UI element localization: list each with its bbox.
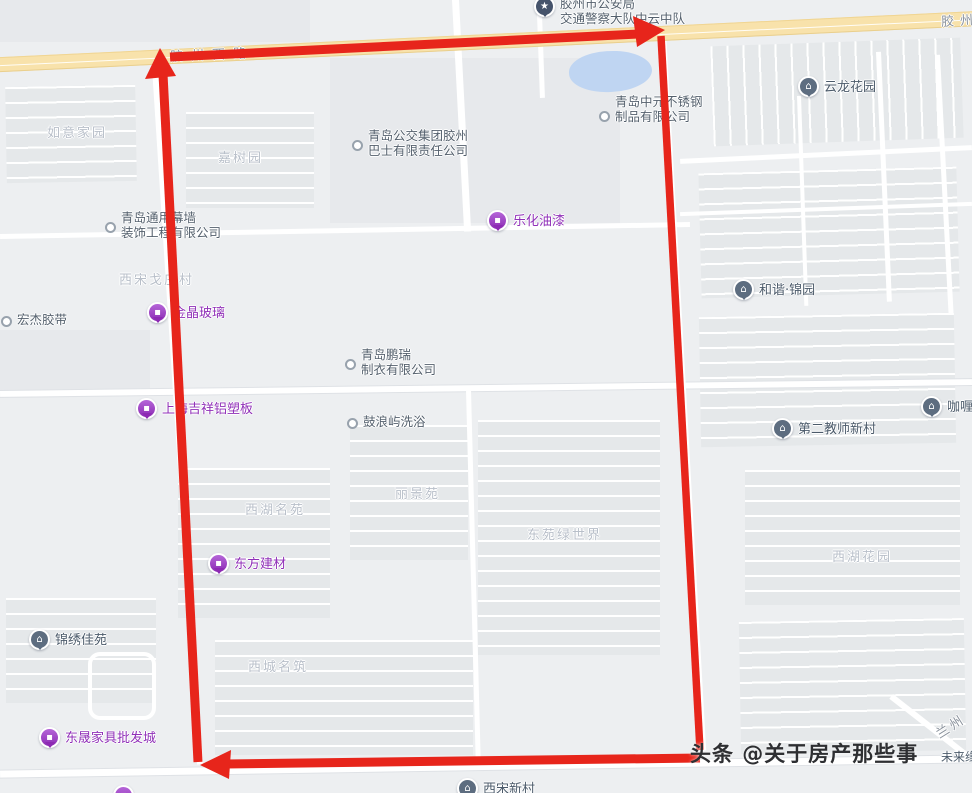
dot-poi-icon bbox=[347, 418, 358, 429]
poi-dierjiaoshixincun[interactable]: ⌂ 第二教师新村 bbox=[772, 418, 876, 439]
house-pin-icon: ⌂ bbox=[798, 76, 819, 97]
poi-label: 巴士有限责任公司 bbox=[368, 143, 468, 158]
poi-gulangyu-bath[interactable]: 鼓浪屿洗浴 bbox=[347, 414, 426, 429]
road-loop bbox=[88, 652, 156, 720]
poi-label: 交通警察大队中云中队 bbox=[560, 11, 685, 26]
map-block bbox=[739, 618, 966, 754]
store-pin-icon: ▪ bbox=[147, 302, 168, 323]
area-label-xichengmingzhu: 西城名筑 bbox=[248, 656, 308, 675]
pond bbox=[568, 49, 653, 94]
road-label-jiaozhou-west: 胶州西路 bbox=[170, 42, 255, 65]
poi-dongshengjiaju[interactable]: ▪ 东晟家具批发城 bbox=[39, 727, 156, 748]
poi-hongjie-tape[interactable]: 宏杰胶带 bbox=[1, 312, 67, 327]
map-block bbox=[0, 0, 310, 42]
road-label-jiaozhou: 胶州 bbox=[941, 9, 972, 30]
poi-label: 乐化油漆 bbox=[513, 210, 565, 229]
poi-label: 上海吉祥铝塑板 bbox=[162, 398, 253, 417]
poi-label: 东方建材 bbox=[234, 553, 286, 572]
poi-label-weilaiyuan: 未来缘 bbox=[941, 748, 972, 765]
poi-label: 宏杰胶带 bbox=[17, 312, 67, 327]
dot-poi-icon bbox=[352, 140, 363, 151]
poi-label: 锦绣佳苑 bbox=[55, 629, 107, 648]
poi-yunlonghuayuan[interactable]: ⌂ 云龙花园 bbox=[798, 76, 876, 97]
store-pin-icon: ▪ bbox=[136, 398, 157, 419]
police-pin-icon: ★ bbox=[534, 0, 555, 17]
dot-poi-icon bbox=[105, 222, 116, 233]
dot-poi-icon bbox=[1, 316, 12, 327]
store-pin-icon: ▪ bbox=[208, 553, 229, 574]
area-label-jiashuyuan: 嘉树园 bbox=[218, 147, 263, 166]
poi-label: 金晶玻璃 bbox=[173, 302, 225, 321]
road bbox=[680, 145, 972, 164]
poi-pin-cutoff[interactable]: ▪ bbox=[113, 785, 134, 793]
poi-label: 制品有限公司 bbox=[615, 109, 703, 124]
poi-label: 青岛鹏瑞 bbox=[361, 347, 436, 362]
poi-lehuayouqi[interactable]: ▪ 乐化油漆 bbox=[487, 210, 565, 231]
poi-label: 第二教师新村 bbox=[798, 418, 876, 437]
poi-label: 和谐·锦园 bbox=[759, 279, 815, 298]
poi-hexiejinyuan[interactable]: ⌂ 和谐·锦园 bbox=[733, 279, 815, 300]
poi-label: 胶州市公安局 bbox=[560, 0, 685, 11]
house-pin-icon: ⌂ bbox=[772, 418, 793, 439]
poi-dongfangjiancai[interactable]: ▪ 东方建材 bbox=[208, 553, 286, 574]
poi-label: 东晟家具批发城 bbox=[65, 727, 156, 746]
map-block bbox=[178, 468, 330, 618]
map-block bbox=[0, 330, 150, 390]
area-label-xisonggezhuangcun: 西宋戈庄村 bbox=[119, 269, 194, 288]
poi-label: 装饰工程有限公司 bbox=[121, 225, 221, 240]
poi-label: 青岛通用幕墙 bbox=[121, 210, 221, 225]
poi-label: 西宋新村 bbox=[483, 778, 535, 793]
poi-label: 咖喱 bbox=[947, 396, 972, 415]
area-label-lijingyuan: 丽景苑 bbox=[395, 483, 440, 502]
watermark-toutiao: 头条 @关于房产那些事 bbox=[690, 738, 918, 768]
poi-label: 青岛公交集团胶州 bbox=[368, 128, 468, 143]
poi-label: 制衣有限公司 bbox=[361, 362, 436, 377]
house-pin-icon: ⌂ bbox=[733, 279, 754, 300]
house-pin-icon: ⌂ bbox=[921, 396, 942, 417]
dot-poi-icon bbox=[599, 111, 610, 122]
poi-label: 鼓浪屿洗浴 bbox=[363, 414, 426, 429]
poi-label: 云龙花园 bbox=[824, 76, 876, 95]
house-pin-icon: ⌂ bbox=[29, 629, 50, 650]
area-label-ruyijiayuan: 如意家园 bbox=[47, 122, 107, 141]
poi-xisongxincun[interactable]: ⌂ 西宋新村 bbox=[457, 778, 535, 793]
poi-pengrui-garment[interactable]: 青岛鹏瑞 制衣有限公司 bbox=[345, 347, 436, 377]
area-label-xihuhuayuan: 西湖花园 bbox=[832, 546, 892, 565]
poi-curtain-wall-company[interactable]: 青岛通用幕墙 装饰工程有限公司 bbox=[105, 210, 221, 240]
poi-jinjingboli[interactable]: ▪ 金晶玻璃 bbox=[147, 302, 225, 323]
road bbox=[0, 222, 690, 239]
poi-label: 青岛中元不锈钢 bbox=[615, 94, 703, 109]
area-label-xihumingyuan: 西湖名苑 bbox=[245, 499, 305, 518]
dot-poi-icon bbox=[345, 359, 356, 370]
map-canvas[interactable]: 胶州西路 胶州 兰州 如意家园 嘉树园 西宋戈庄村 西湖名苑 丽景苑 东苑绿世界… bbox=[0, 0, 972, 793]
poi-police-station[interactable]: ★ 胶州市公安局 交通警察大队中云中队 bbox=[534, 0, 685, 26]
store-pin-icon: ▪ bbox=[113, 785, 134, 793]
poi-bus-company[interactable]: 青岛公交集团胶州 巴士有限责任公司 bbox=[352, 128, 468, 158]
poi-shanghaijixiang[interactable]: ▪ 上海吉祥铝塑板 bbox=[136, 398, 253, 419]
store-pin-icon: ▪ bbox=[39, 727, 60, 748]
house-pin-icon: ⌂ bbox=[457, 778, 478, 793]
area-label-dongyuanlvshijie: 东苑绿世界 bbox=[527, 524, 602, 543]
paint-pin-icon: ▪ bbox=[487, 210, 508, 231]
map-block bbox=[745, 470, 960, 605]
poi-gali[interactable]: ⌂ 咖喱 bbox=[921, 396, 972, 417]
poi-zhongyuan-stainless[interactable]: 青岛中元不锈钢 制品有限公司 bbox=[599, 94, 703, 124]
poi-jinxiujiayuan[interactable]: ⌂ 锦绣佳苑 bbox=[29, 629, 107, 650]
